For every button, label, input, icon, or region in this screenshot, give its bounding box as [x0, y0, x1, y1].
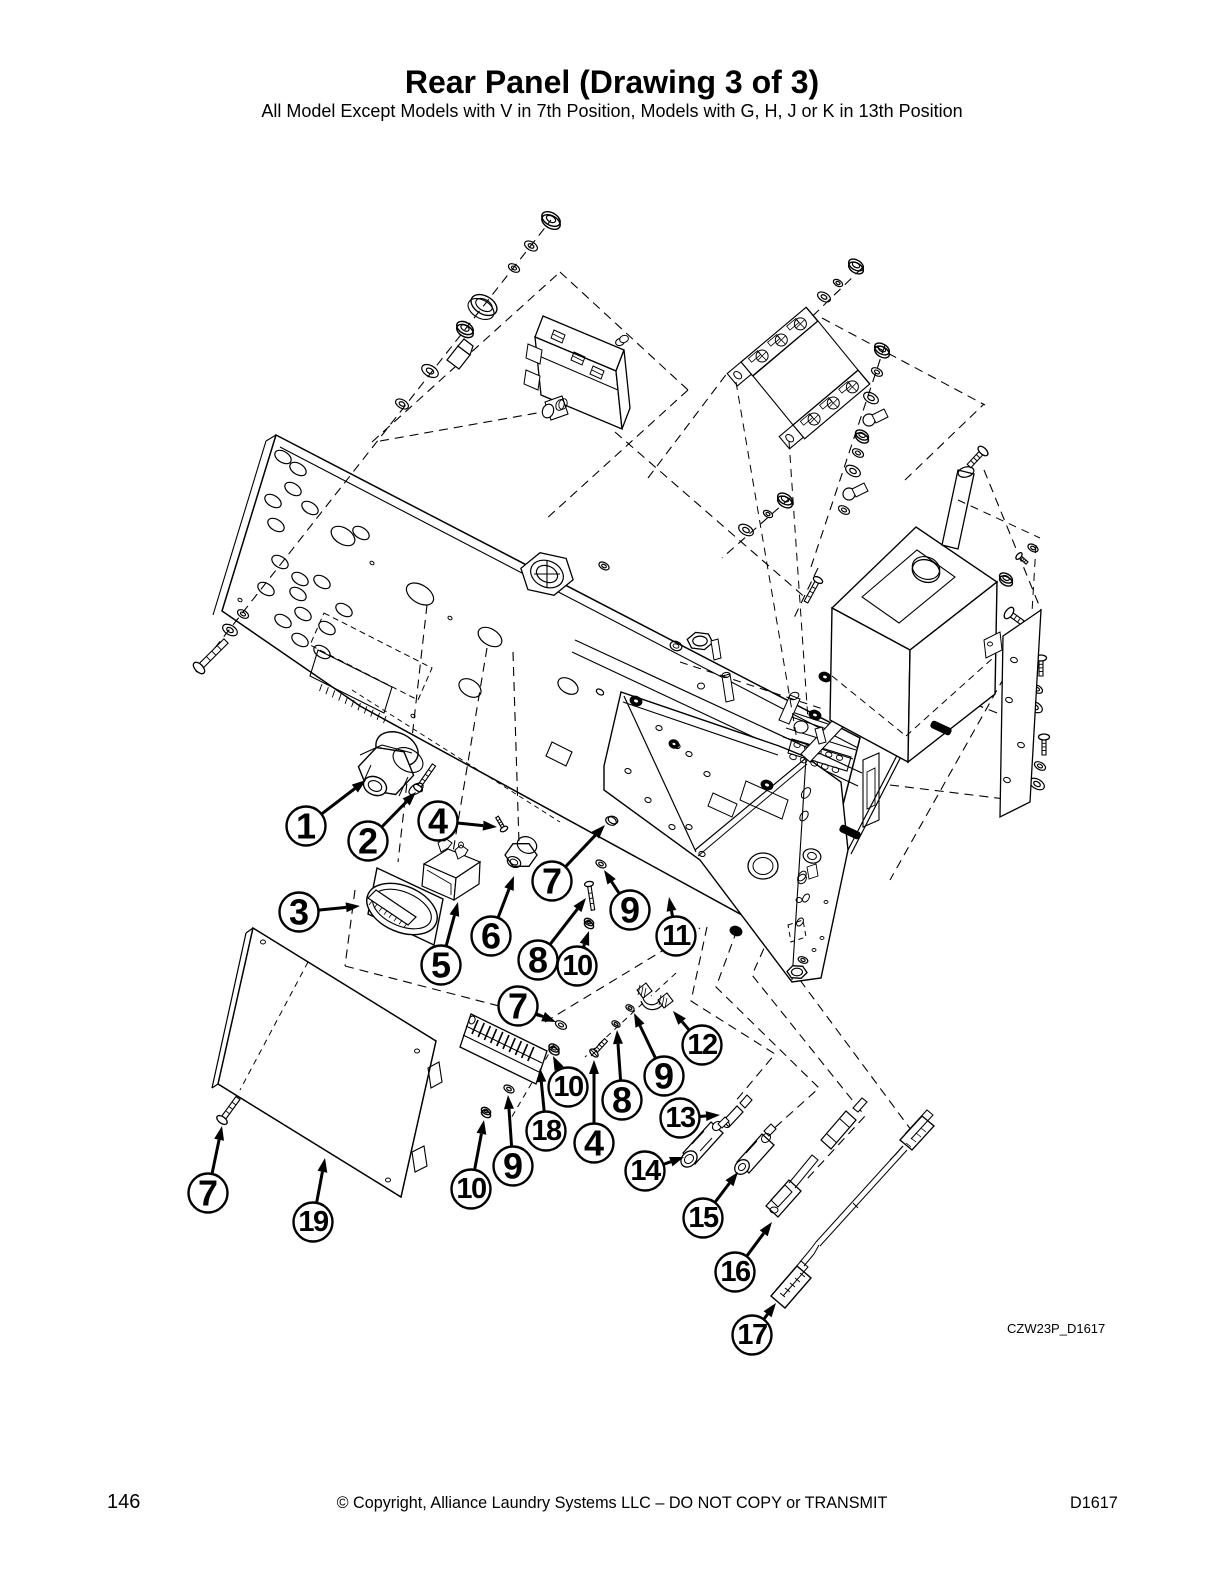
svg-text:13: 13	[665, 1102, 696, 1134]
svg-text:14: 14	[630, 1155, 661, 1187]
svg-text:6: 6	[481, 916, 501, 957]
svg-text:7: 7	[198, 1173, 218, 1214]
svg-text:12: 12	[687, 1029, 717, 1061]
svg-text:4: 4	[428, 801, 448, 842]
svg-text:1: 1	[296, 806, 316, 847]
svg-text:10: 10	[456, 1173, 486, 1205]
svg-text:3: 3	[289, 892, 309, 933]
svg-text:5: 5	[431, 945, 451, 986]
svg-text:15: 15	[688, 1202, 719, 1234]
svg-text:8: 8	[528, 940, 548, 981]
svg-text:10: 10	[562, 950, 592, 982]
svg-text:18: 18	[531, 1115, 562, 1147]
svg-text:17: 17	[737, 1319, 767, 1351]
svg-text:9: 9	[503, 1146, 523, 1187]
svg-text:4: 4	[584, 1123, 604, 1164]
svg-text:19: 19	[298, 1206, 329, 1238]
svg-text:8: 8	[612, 1080, 632, 1121]
svg-text:11: 11	[662, 920, 691, 952]
svg-text:9: 9	[620, 890, 640, 931]
svg-text:10: 10	[553, 1071, 583, 1103]
svg-text:16: 16	[720, 1256, 751, 1288]
svg-text:2: 2	[358, 821, 378, 862]
svg-text:7: 7	[542, 861, 562, 902]
svg-text:7: 7	[508, 986, 528, 1027]
svg-text:9: 9	[654, 1056, 674, 1097]
